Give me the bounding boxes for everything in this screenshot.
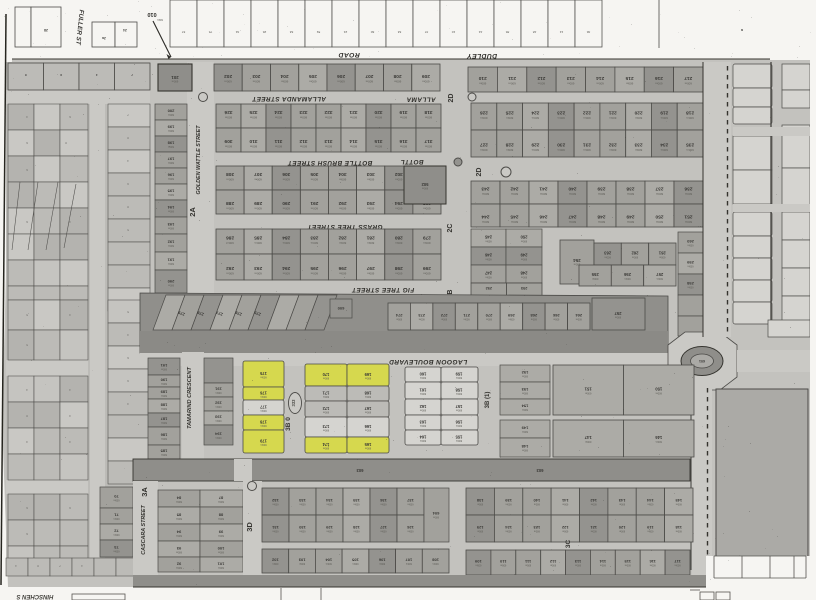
svg-text:189: 189 <box>160 390 167 395</box>
svg-text:600m: 600m <box>655 192 663 196</box>
svg-text:600m: 600m <box>280 79 288 83</box>
svg-text:137: 137 <box>406 498 413 503</box>
svg-text:147: 147 <box>584 435 592 440</box>
svg-text:75: 75 <box>209 30 213 34</box>
svg-text:600m: 600m <box>534 503 540 506</box>
svg-text:151: 151 <box>584 387 592 392</box>
svg-text:221: 221 <box>608 110 616 116</box>
svg-text:600m: 600m <box>299 115 307 119</box>
svg-text:63: 63 <box>398 30 402 34</box>
svg-text:110: 110 <box>499 559 506 564</box>
svg-text:600m: 600m <box>168 129 174 132</box>
svg-text:309: 309 <box>224 138 232 144</box>
svg-text:228: 228 <box>505 142 513 148</box>
svg-text:113: 113 <box>574 559 581 564</box>
svg-text:118: 118 <box>675 525 682 530</box>
svg-text:220: 220 <box>634 110 642 116</box>
svg-text:217: 217 <box>684 75 692 81</box>
svg-text:212: 212 <box>537 75 545 81</box>
svg-text:600m: 600m <box>161 421 167 424</box>
svg-text:600m: 600m <box>480 148 488 152</box>
svg-text:315: 315 <box>374 138 382 144</box>
svg-text:245: 245 <box>510 214 518 220</box>
svg-text:191: 191 <box>167 258 174 263</box>
svg-text:3B 0: 3B 0 <box>285 417 292 431</box>
svg-text:227: 227 <box>480 142 488 148</box>
svg-text:128: 128 <box>352 525 359 530</box>
svg-text:600m: 600m <box>226 241 234 245</box>
svg-text:600m: 600m <box>655 81 663 85</box>
svg-text:273: 273 <box>418 313 425 318</box>
svg-text:205: 205 <box>309 73 317 79</box>
svg-text:600m: 600m <box>686 116 694 120</box>
svg-text:2a: 2a <box>102 36 106 40</box>
svg-text:600m: 600m <box>539 192 547 196</box>
svg-text:3C: 3C <box>565 540 572 549</box>
svg-text:600m: 600m <box>381 530 387 533</box>
svg-text:600m: 600m <box>568 220 576 224</box>
svg-text:114: 114 <box>599 559 606 564</box>
svg-text:37: 37 <box>425 30 429 34</box>
svg-text:101: 101 <box>217 561 224 566</box>
svg-text:170: 170 <box>322 372 330 377</box>
svg-text:600m: 600m <box>161 453 167 456</box>
svg-text:600m: 600m <box>176 550 182 553</box>
svg-text:145: 145 <box>675 498 682 503</box>
svg-text:134: 134 <box>325 498 332 503</box>
svg-text:600m: 600m <box>659 255 665 258</box>
svg-text:600m: 600m <box>161 368 167 371</box>
svg-text:243: 243 <box>481 186 489 192</box>
svg-text:600m: 600m <box>456 439 462 442</box>
svg-text:171: 171 <box>322 390 330 395</box>
svg-text:12: 12 <box>560 30 564 34</box>
svg-text:600m: 600m <box>252 79 260 83</box>
svg-text:600m: 600m <box>399 115 407 119</box>
svg-text:290: 290 <box>282 200 290 206</box>
svg-text:225: 225 <box>505 110 513 116</box>
svg-text:600m: 600m <box>168 210 174 213</box>
svg-text:BOTTLE BRUSH STREET: BOTTLE BRUSH STREET <box>287 159 372 166</box>
svg-text:284: 284 <box>282 235 290 241</box>
svg-text:294: 294 <box>282 265 290 271</box>
svg-text:600m: 600m <box>365 395 371 398</box>
svg-text:272: 272 <box>440 313 447 318</box>
svg-text:600m: 600m <box>585 391 591 394</box>
svg-text:150: 150 <box>655 387 663 392</box>
svg-text:600m: 600m <box>374 144 382 148</box>
svg-text:600m: 600m <box>539 220 547 224</box>
svg-text:187: 187 <box>160 417 167 422</box>
svg-text:302: 302 <box>394 171 402 177</box>
svg-text:256: 256 <box>623 272 631 277</box>
svg-text:600m: 600m <box>591 503 597 506</box>
svg-text:135: 135 <box>352 498 359 503</box>
svg-text:600m: 600m <box>168 262 174 265</box>
svg-text:600m: 600m <box>420 424 426 427</box>
svg-text:197: 197 <box>167 157 174 162</box>
svg-text:144: 144 <box>646 498 653 503</box>
svg-text:600m: 600m <box>423 271 431 275</box>
svg-text:223: 223 <box>557 110 565 116</box>
svg-text:600m: 600m <box>168 283 174 286</box>
svg-text:317: 317 <box>424 138 432 144</box>
svg-text:260: 260 <box>686 239 693 244</box>
svg-text:269: 269 <box>507 313 514 318</box>
svg-text:600m: 600m <box>424 144 432 148</box>
svg-text:600m: 600m <box>216 419 222 422</box>
svg-text:600m: 600m <box>338 206 346 210</box>
svg-text:290: 290 <box>167 279 174 284</box>
svg-text:600m: 600m <box>254 177 262 181</box>
svg-text:308: 308 <box>226 171 234 177</box>
svg-text:600m: 600m <box>249 115 257 119</box>
svg-text:59: 59 <box>317 30 321 34</box>
svg-text:268: 268 <box>530 313 537 318</box>
svg-text:600m: 600m <box>354 503 360 506</box>
svg-text:600m: 600m <box>172 80 179 84</box>
svg-text:266: 266 <box>552 313 559 318</box>
svg-text:312: 312 <box>299 138 307 144</box>
svg-text:600m: 600m <box>218 500 224 503</box>
svg-text:279: 279 <box>423 235 431 241</box>
svg-text:600m: 600m <box>365 447 371 450</box>
svg-text:109: 109 <box>474 559 481 564</box>
svg-text:234: 234 <box>660 142 668 148</box>
svg-text:600m: 600m <box>625 564 631 567</box>
svg-text:131: 131 <box>271 525 278 530</box>
svg-text:100: 100 <box>217 546 224 551</box>
svg-text:253: 253 <box>521 286 527 290</box>
svg-text:600m: 600m <box>114 499 120 502</box>
svg-text:600m: 600m <box>433 562 439 565</box>
svg-text:600m: 600m <box>477 530 483 533</box>
svg-text:600m: 600m <box>327 530 333 533</box>
svg-text:168: 168 <box>364 390 372 395</box>
svg-text:600m: 600m <box>323 429 329 432</box>
svg-text:307: 307 <box>254 171 262 177</box>
svg-text:333: 333 <box>291 399 296 407</box>
svg-text:259: 259 <box>686 260 693 265</box>
svg-text:224: 224 <box>531 110 539 116</box>
svg-text:129: 129 <box>325 525 332 530</box>
svg-text:115: 115 <box>624 559 631 564</box>
svg-text:600m: 600m <box>676 503 682 506</box>
svg-text:600m: 600m <box>337 79 345 83</box>
svg-text:600m: 600m <box>354 530 360 533</box>
svg-text:600m: 600m <box>485 257 491 260</box>
svg-text:274: 274 <box>395 313 402 318</box>
svg-text:143: 143 <box>618 498 625 503</box>
svg-text:600m: 600m <box>676 530 682 533</box>
svg-text:600m: 600m <box>168 244 174 247</box>
svg-text:211: 211 <box>508 75 516 81</box>
svg-text:600m: 600m <box>576 318 582 321</box>
svg-text:285: 285 <box>254 235 262 241</box>
svg-text:600m: 600m <box>562 503 568 506</box>
svg-text:203: 203 <box>252 73 260 79</box>
svg-text:63: 63 <box>290 30 294 34</box>
svg-text:241: 241 <box>539 186 547 192</box>
svg-text:102: 102 <box>271 558 278 563</box>
svg-text:600m: 600m <box>684 220 692 224</box>
svg-text:600m: 600m <box>531 116 539 120</box>
svg-text:600m: 600m <box>537 81 545 85</box>
svg-text:245: 245 <box>484 235 492 240</box>
svg-text:600m: 600m <box>597 192 605 196</box>
svg-text:600m: 600m <box>675 564 681 567</box>
svg-text:219: 219 <box>660 110 668 116</box>
svg-text:ROAD: ROAD <box>338 51 360 58</box>
svg-text:600m: 600m <box>176 500 182 503</box>
svg-text:600m: 600m <box>274 144 282 148</box>
svg-text:159: 159 <box>455 371 463 376</box>
svg-text:600m: 600m <box>300 503 306 506</box>
svg-text:117: 117 <box>674 559 681 564</box>
svg-text:600m: 600m <box>506 530 512 533</box>
svg-text:71: 71 <box>114 513 119 518</box>
svg-text:250: 250 <box>520 235 528 240</box>
svg-text:600m: 600m <box>485 275 491 278</box>
svg-text:177: 177 <box>259 404 267 409</box>
svg-text:600m: 600m <box>619 530 625 533</box>
svg-text:262: 262 <box>631 251 639 256</box>
svg-text:600m: 600m <box>161 407 167 410</box>
svg-text:600m: 600m <box>260 443 266 446</box>
svg-text:HINSCHEN S: HINSCHEN S <box>16 593 53 599</box>
svg-text:140: 140 <box>533 498 540 503</box>
svg-text:153: 153 <box>521 387 528 392</box>
svg-text:258: 258 <box>686 281 693 286</box>
svg-text:600m: 600m <box>423 206 431 210</box>
svg-text:600m: 600m <box>216 391 222 394</box>
svg-text:600m: 600m <box>393 79 401 83</box>
svg-text:126: 126 <box>406 525 413 530</box>
svg-text:600m: 600m <box>480 116 488 120</box>
svg-text:600m: 600m <box>299 144 307 148</box>
svg-text:BOTTL: BOTTL <box>400 158 423 165</box>
svg-text:600m: 600m <box>218 566 224 569</box>
svg-text:600m: 600m <box>353 562 359 565</box>
svg-text:603: 603 <box>356 468 364 473</box>
svg-text:238: 238 <box>626 186 634 192</box>
svg-text:600m: 600m <box>500 564 506 567</box>
svg-text:600m: 600m <box>310 241 318 245</box>
svg-text:600m: 600m <box>395 271 403 275</box>
svg-text:176: 176 <box>259 390 267 395</box>
svg-text:222: 222 <box>583 110 591 116</box>
svg-text:311: 311 <box>274 138 282 144</box>
svg-text:600m: 600m <box>522 375 528 378</box>
svg-text:72: 72 <box>114 529 119 534</box>
svg-text:600m: 600m <box>575 564 581 567</box>
svg-text:600m: 600m <box>534 530 540 533</box>
svg-text:247: 247 <box>484 271 492 276</box>
svg-text:252: 252 <box>486 286 492 290</box>
svg-text:DUDLEY: DUDLEY <box>466 52 497 59</box>
svg-text:138: 138 <box>476 498 483 503</box>
svg-text:a: a <box>741 28 743 32</box>
svg-text:600m: 600m <box>626 192 634 196</box>
svg-text:304: 304 <box>338 171 346 177</box>
svg-text:600m: 600m <box>422 187 428 190</box>
svg-text:283: 283 <box>310 235 318 241</box>
svg-text:286: 286 <box>226 235 234 241</box>
svg-text:600m: 600m <box>299 562 305 565</box>
svg-text:199: 199 <box>167 125 174 130</box>
svg-text:104: 104 <box>325 558 332 563</box>
svg-text:600m: 600m <box>282 241 290 245</box>
svg-text:123: 123 <box>533 525 540 530</box>
svg-text:600m: 600m <box>456 409 462 412</box>
svg-text:600m: 600m <box>218 550 224 553</box>
svg-text:111: 111 <box>524 559 531 564</box>
svg-text:155: 155 <box>455 434 463 439</box>
svg-text:148: 148 <box>521 444 528 449</box>
svg-text:195: 195 <box>167 189 174 194</box>
svg-text:600m: 600m <box>615 316 621 319</box>
svg-text:318: 318 <box>424 109 432 115</box>
svg-text:600m: 600m <box>656 440 662 443</box>
svg-text:600m: 600m <box>216 436 222 439</box>
svg-text:178: 178 <box>259 419 267 424</box>
svg-text:248: 248 <box>520 271 528 276</box>
svg-text:67: 67 <box>182 30 186 34</box>
svg-text:164: 164 <box>419 434 427 439</box>
svg-text:250: 250 <box>655 214 663 220</box>
svg-text:325: 325 <box>249 109 257 115</box>
svg-text:190: 190 <box>160 378 167 383</box>
svg-text:313: 313 <box>324 138 332 144</box>
svg-text:293: 293 <box>366 200 374 206</box>
svg-text:010: 010 <box>147 11 156 17</box>
svg-text:600m: 600m <box>634 116 642 120</box>
svg-text:600m: 600m <box>456 392 462 395</box>
svg-text:600m: 600m <box>366 177 374 181</box>
svg-text:600m: 600m <box>254 241 262 245</box>
svg-text:600m: 600m <box>226 271 234 275</box>
svg-text:600m: 600m <box>485 239 491 242</box>
svg-text:282: 282 <box>338 235 346 241</box>
svg-text:192: 192 <box>214 401 221 406</box>
svg-text:600m: 600m <box>647 503 653 506</box>
svg-text:249: 249 <box>520 253 528 258</box>
svg-text:191: 191 <box>160 363 167 368</box>
svg-text:600m: 600m <box>510 220 518 224</box>
svg-text:60m: 60m <box>157 18 163 22</box>
svg-text:600m: 600m <box>168 193 174 196</box>
svg-text:600m: 600m <box>420 376 426 379</box>
svg-text:600m: 600m <box>423 241 431 245</box>
svg-text:186: 186 <box>160 433 167 438</box>
svg-text:600m: 600m <box>477 503 483 506</box>
svg-text:600m: 600m <box>522 392 528 395</box>
svg-text:600m: 600m <box>323 377 329 380</box>
svg-text:146: 146 <box>655 435 663 440</box>
svg-text:600m: 600m <box>395 206 403 210</box>
svg-text:303: 303 <box>366 171 374 177</box>
svg-text:163: 163 <box>419 419 427 424</box>
svg-text:600m: 600m <box>656 391 662 394</box>
svg-text:263: 263 <box>604 251 612 256</box>
svg-text:105: 105 <box>351 558 358 563</box>
svg-text:240: 240 <box>568 186 576 192</box>
svg-text:600m: 600m <box>419 318 425 321</box>
svg-text:600m: 600m <box>176 534 182 537</box>
svg-text:600m: 600m <box>310 271 318 275</box>
svg-text:600m: 600m <box>525 564 531 567</box>
svg-text:196: 196 <box>167 173 174 178</box>
svg-text:600m: 600m <box>216 405 222 408</box>
svg-text:289: 289 <box>254 200 262 206</box>
svg-text:600m: 600m <box>260 395 266 398</box>
svg-text:600m: 600m <box>647 530 653 533</box>
svg-text:192: 192 <box>167 240 174 245</box>
svg-text:92: 92 <box>176 561 181 566</box>
svg-text:321: 321 <box>349 109 357 115</box>
svg-text:292: 292 <box>338 200 346 206</box>
svg-text:288: 288 <box>226 200 234 206</box>
svg-text:229: 229 <box>531 142 539 148</box>
svg-text:2D: 2D <box>476 168 483 177</box>
svg-text:121: 121 <box>590 525 597 530</box>
svg-text:600m: 600m <box>508 81 516 85</box>
svg-text:600m: 600m <box>626 220 634 224</box>
svg-text:254: 254 <box>573 258 581 263</box>
svg-text:2C: 2C <box>447 224 454 233</box>
svg-text:600m: 600m <box>224 115 232 119</box>
svg-text:600m: 600m <box>521 239 527 242</box>
svg-text:242: 242 <box>510 186 518 192</box>
svg-text:600m: 600m <box>218 517 224 520</box>
svg-text:600m: 600m <box>433 515 439 518</box>
svg-text:116: 116 <box>649 559 656 564</box>
svg-text:600m: 600m <box>550 564 556 567</box>
svg-text:600m: 600m <box>273 530 279 533</box>
svg-text:73: 73 <box>114 545 119 550</box>
svg-text:324: 324 <box>274 109 282 115</box>
svg-text:600m: 600m <box>300 530 306 533</box>
svg-text:600m: 600m <box>399 144 407 148</box>
svg-text:600m: 600m <box>475 564 481 567</box>
svg-text:193: 193 <box>214 415 221 420</box>
svg-text:600m: 600m <box>655 220 663 224</box>
svg-text:600m: 600m <box>366 206 374 210</box>
svg-text:204: 204 <box>280 73 288 79</box>
svg-text:173: 173 <box>322 424 330 429</box>
svg-text:600m: 600m <box>605 255 611 258</box>
svg-text:600m: 600m <box>349 144 357 148</box>
svg-text:600m: 600m <box>567 81 575 85</box>
svg-text:130: 130 <box>298 525 305 530</box>
svg-text:600m: 600m <box>282 177 290 181</box>
svg-text:600m: 600m <box>282 271 290 275</box>
svg-text:2A: 2A <box>188 207 197 217</box>
svg-text:172: 172 <box>322 406 330 411</box>
svg-text:600m: 600m <box>420 392 426 395</box>
svg-text:600m: 600m <box>324 144 332 148</box>
svg-text:209: 209 <box>422 73 430 79</box>
svg-text:600m: 600m <box>505 116 513 120</box>
svg-text:600m: 600m <box>218 534 224 537</box>
svg-text:ALLAMA: ALLAMA <box>406 96 436 103</box>
svg-text:162: 162 <box>419 404 427 409</box>
svg-text:600m: 600m <box>557 148 565 152</box>
svg-text:198: 198 <box>167 141 174 146</box>
svg-text:244: 244 <box>481 214 489 220</box>
svg-text:248: 248 <box>597 214 605 220</box>
svg-text:93: 93 <box>176 546 181 551</box>
